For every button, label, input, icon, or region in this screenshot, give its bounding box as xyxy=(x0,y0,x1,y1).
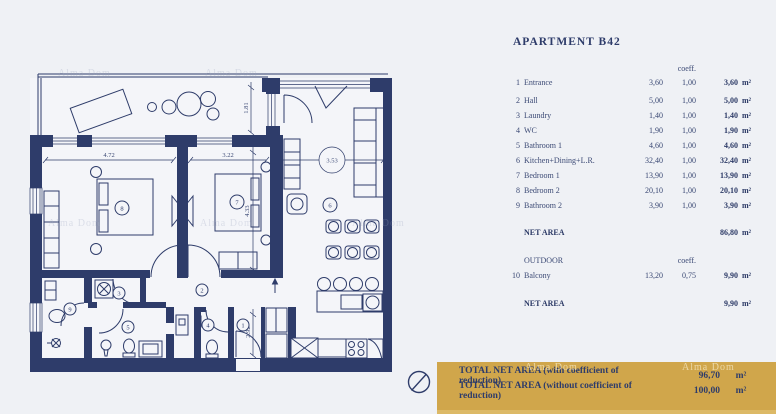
row-name: Balcony xyxy=(524,271,623,280)
row-net: 1,90 xyxy=(696,126,738,135)
row-name: Bedroom 2 xyxy=(524,186,623,195)
total-unit: m² xyxy=(720,371,762,381)
table-row: 8 Bedroom 2 20,10 1,00 20,10 m² xyxy=(500,183,764,198)
row-unit: m² xyxy=(738,78,764,87)
table-row: 1 Entrance 3,60 1,00 3,60 m² xyxy=(500,75,764,90)
floorplan-page: .w{fill:#2e3c6a;} .ln{stroke:#2e3c6a;str… xyxy=(0,0,776,414)
total-without-coeff-value: 100,00 xyxy=(662,386,720,396)
row-unit: m² xyxy=(738,271,764,280)
row-num: 1 xyxy=(500,78,524,87)
net-area-value: 86,80 xyxy=(696,228,738,237)
row-name: Bathroom 2 xyxy=(524,201,623,210)
row-coeff: 0,75 xyxy=(663,271,696,280)
row-num: 9 xyxy=(500,201,524,210)
area-table-panel: APARTMENT B42 coeff. 1 Entrance 3,60 1,0… xyxy=(500,0,764,311)
row-coeff: 1,00 xyxy=(663,126,696,135)
coeff-header: coeff. xyxy=(663,64,696,73)
svg-text:2: 2 xyxy=(200,288,203,295)
row-net: 13,90 xyxy=(696,171,738,180)
row-unit: m² xyxy=(738,156,764,165)
svg-text:8: 8 xyxy=(120,206,123,213)
row-name: Kitchen+Dining+L.R. xyxy=(524,156,623,165)
svg-text:3: 3 xyxy=(117,291,120,298)
total-without-coeff-label: TOTAL NET AREA (without coefficient of r… xyxy=(459,381,662,401)
page-title: APARTMENT B42 xyxy=(500,36,764,48)
row-net: 32,40 xyxy=(696,156,738,165)
outdoor-header-row: OUTDOOR coeff. xyxy=(500,253,764,268)
row-name: Bedroom 1 xyxy=(524,171,623,180)
row-num: 4 xyxy=(500,126,524,135)
row-unit: m² xyxy=(738,201,764,210)
table-row: 6 Kitchen+Dining+L.R. 32,40 1,00 32,40 m… xyxy=(500,153,764,168)
row-area: 13,90 xyxy=(623,171,663,180)
row-unit: m² xyxy=(738,141,764,150)
svg-text:1: 1 xyxy=(241,323,244,330)
total-with-coeff-value: 96,70 xyxy=(662,371,720,381)
row-coeff: 1,00 xyxy=(663,156,696,165)
row-coeff: 1,00 xyxy=(663,111,696,120)
net-area-label: NET AREA xyxy=(524,228,623,237)
row-net: 4,60 xyxy=(696,141,738,150)
row-unit: m² xyxy=(738,111,764,120)
table-row: 4 WC 1,90 1,00 1,90 m² xyxy=(500,123,764,138)
total-unit: m² xyxy=(720,386,762,396)
total-without-coeff-row: TOTAL NET AREA (without coefficient of r… xyxy=(437,383,776,398)
row-num: 8 xyxy=(500,186,524,195)
row-area: 20,10 xyxy=(623,186,663,195)
row-area: 1,90 xyxy=(623,126,663,135)
row-name: Entrance xyxy=(524,78,623,87)
row-area: 3,90 xyxy=(623,201,663,210)
row-net: 5,00 xyxy=(696,96,738,105)
row-num: 7 xyxy=(500,171,524,180)
svg-text:3.53: 3.53 xyxy=(326,158,337,165)
svg-text:4.72: 4.72 xyxy=(103,152,114,159)
row-name: Hall xyxy=(524,96,623,105)
row-net: 9,90 xyxy=(696,271,738,280)
net-area-unit: m² xyxy=(738,228,764,237)
outdoor-coeff-header: coeff. xyxy=(663,256,696,265)
row-coeff: 1,00 xyxy=(663,141,696,150)
table-row: 2 Hall 5,00 1,00 5,00 m² xyxy=(500,93,764,108)
row-area: 1,40 xyxy=(623,111,663,120)
row-num: 2 xyxy=(500,96,524,105)
row-area: 4,60 xyxy=(623,141,663,150)
table-header-row: coeff. xyxy=(500,62,764,75)
row-coeff: 1,00 xyxy=(663,201,696,210)
svg-text:3.22: 3.22 xyxy=(222,152,233,159)
outdoor-net-value: 9,90 xyxy=(696,299,738,308)
svg-text:9: 9 xyxy=(68,307,71,314)
compass-icon xyxy=(409,372,430,393)
row-num: 10 xyxy=(500,271,524,280)
outdoor-net-label: NET AREA xyxy=(524,299,623,308)
outdoor-net-area-row: NET AREA 9,90 m² xyxy=(500,296,764,311)
table-row: 7 Bedroom 1 13,90 1,00 13,90 m² xyxy=(500,168,764,183)
svg-text:5: 5 xyxy=(126,325,129,332)
row-name: Bathroom 1 xyxy=(524,141,623,150)
row-net: 3,90 xyxy=(696,201,738,210)
outdoor-net-unit: m² xyxy=(738,299,764,308)
svg-text:4.33: 4.33 xyxy=(244,205,251,216)
row-coeff: 1,00 xyxy=(663,78,696,87)
net-area-row: NET AREA 86,80 m² xyxy=(500,225,764,240)
row-coeff: 1,00 xyxy=(663,96,696,105)
row-coeff: 1,00 xyxy=(663,186,696,195)
row-net: 20,10 xyxy=(696,186,738,195)
row-area: 3,60 xyxy=(623,78,663,87)
outdoor-label: OUTDOOR xyxy=(524,256,623,265)
table-row: 3 Laundry 1,40 1,00 1,40 m² xyxy=(500,108,764,123)
row-coeff: 1,00 xyxy=(663,171,696,180)
row-unit: m² xyxy=(738,171,764,180)
row-name: Laundry xyxy=(524,111,623,120)
entrance-opening xyxy=(236,359,260,371)
row-num: 5 xyxy=(500,141,524,150)
row-net: 1,40 xyxy=(696,111,738,120)
row-unit: m² xyxy=(738,186,764,195)
table-row: 9 Bathroom 2 3,90 1,00 3,90 m² xyxy=(500,198,764,213)
balcony-row: 10 Balcony 13,20 0,75 9,90 m² xyxy=(500,268,764,283)
floorplan-drawing: .w{fill:#2e3c6a;} .ln{stroke:#2e3c6a;str… xyxy=(0,0,450,414)
row-area: 13,20 xyxy=(623,271,663,280)
row-area: 32,40 xyxy=(623,156,663,165)
row-net: 3,60 xyxy=(696,78,738,87)
row-num: 3 xyxy=(500,111,524,120)
totals-banner: TOTAL NET AREA (with coefficient of redu… xyxy=(437,362,776,414)
table-row: 5 Bathroom 1 4,60 1,00 4,60 m² xyxy=(500,138,764,153)
row-area: 5,00 xyxy=(623,96,663,105)
svg-text:1.81: 1.81 xyxy=(243,102,250,113)
row-unit: m² xyxy=(738,126,764,135)
row-num: 6 xyxy=(500,156,524,165)
row-name: WC xyxy=(524,126,623,135)
row-unit: m² xyxy=(738,96,764,105)
